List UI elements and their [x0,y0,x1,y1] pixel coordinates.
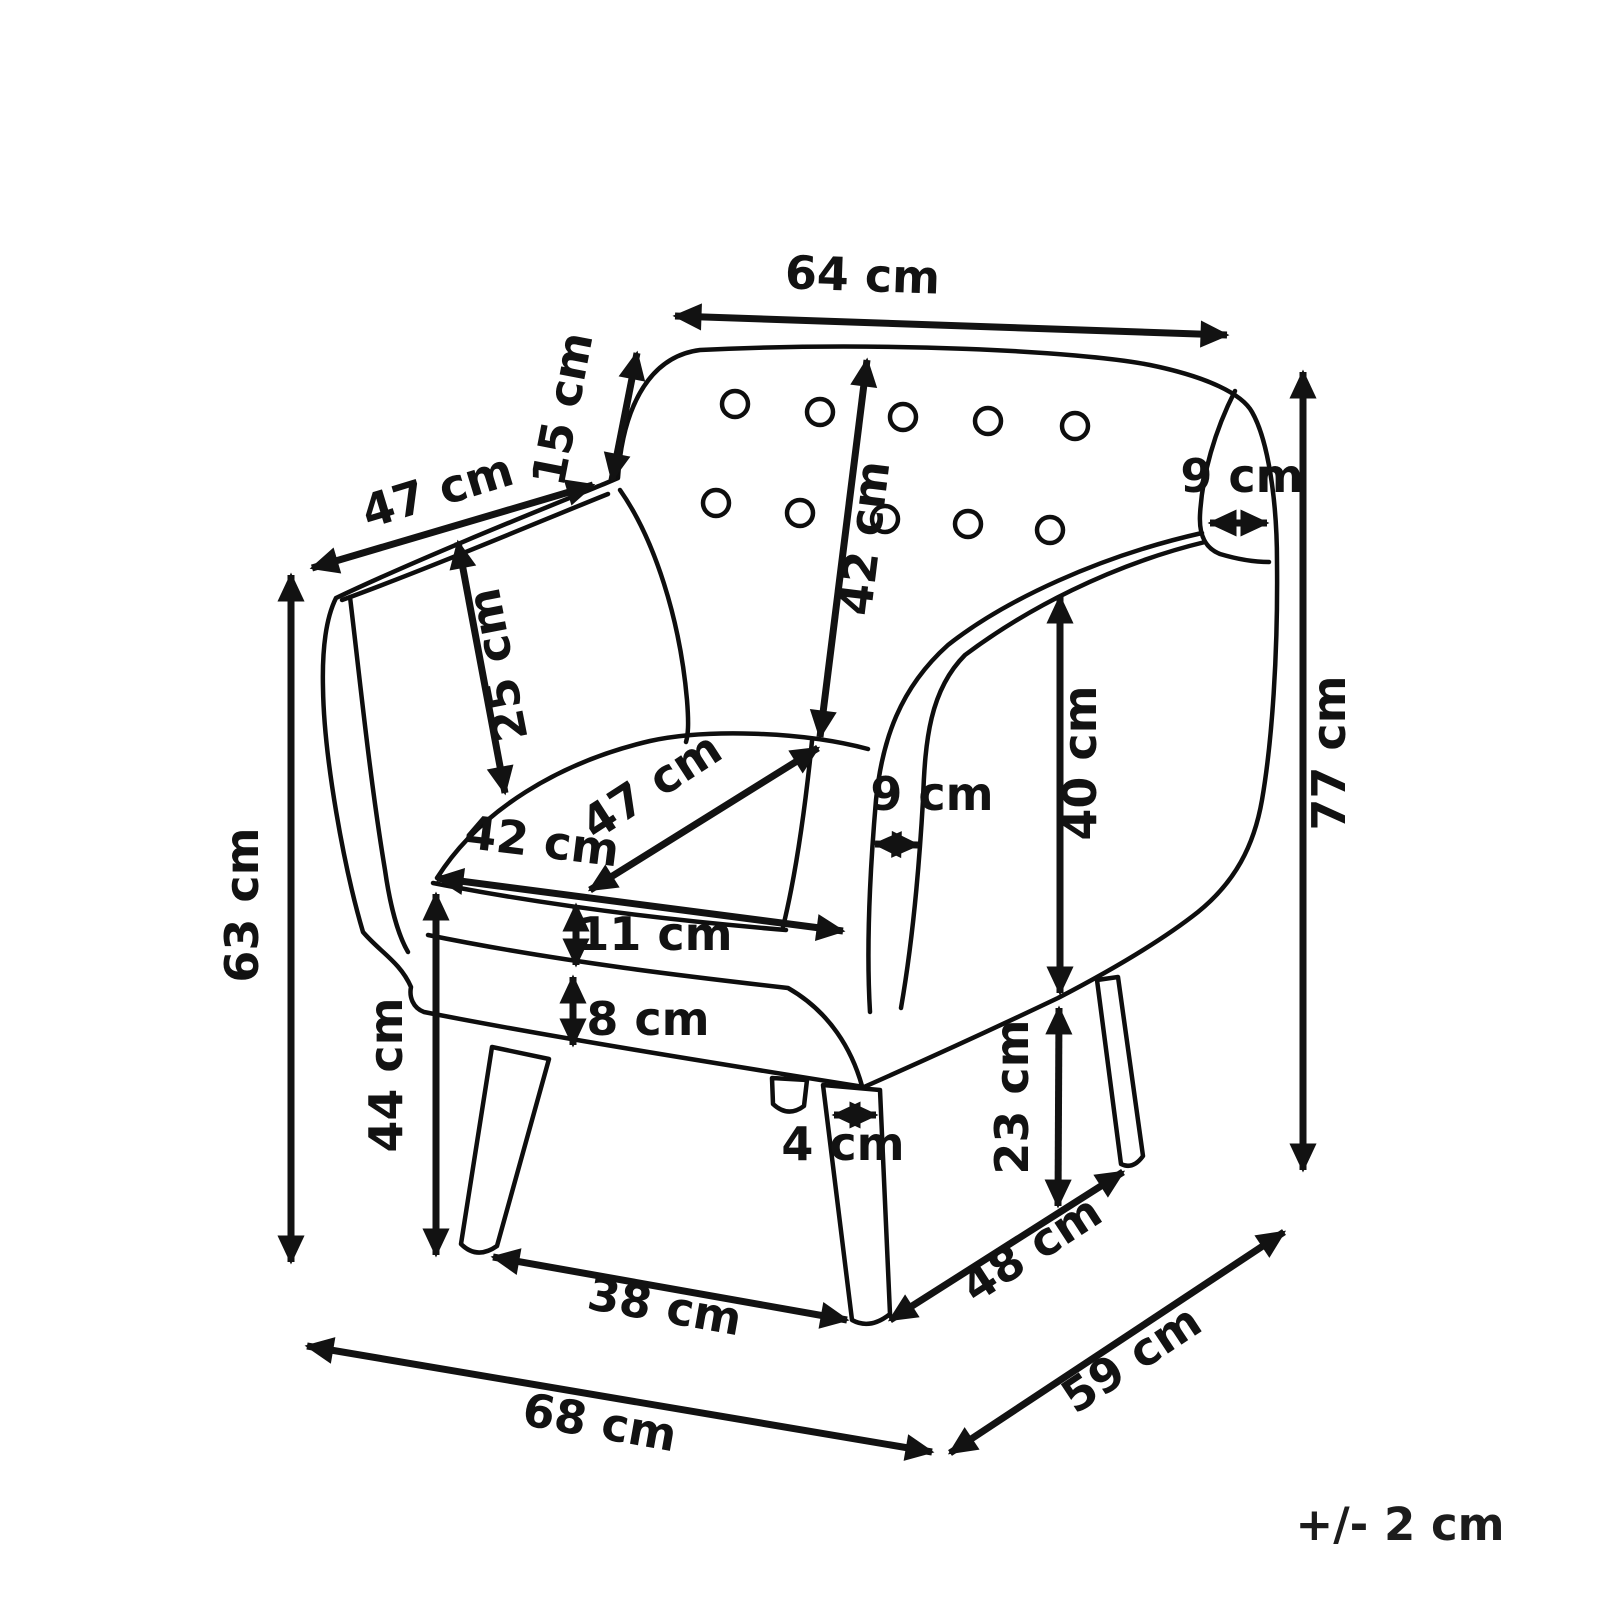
dimension-total-height: 77 cm [1302,372,1356,1170]
dim-arrow-leg-height [1058,1008,1059,1206]
tufting-button [975,408,1001,434]
dimension-cushion-thickness: 11 cm [576,905,733,965]
dim-label-seat-height: 44 cm [359,997,413,1152]
chair-leg-back-right [1097,977,1143,1166]
tufting-button [1062,413,1088,439]
tufting-button [807,399,833,425]
dim-label-cushion-thickness: 11 cm [577,907,732,961]
dim-label-base-height: 8 cm [586,992,709,1046]
tufting-button [1037,517,1063,543]
dimension-side-leg-span: 48 cm [890,1172,1123,1320]
armchair-dimension-drawing: 64 cm 15 cm 47 cm 42 cm 9 cm 77 cm 25 cm… [0,0,1600,1600]
dim-label-leg-width: 4 cm [781,1117,904,1171]
dimension-arm-height-left: 63 cm [215,575,291,1262]
dim-label-front-leg-span: 38 cm [584,1266,746,1346]
chair-leg-front-left [461,1047,549,1253]
dimension-diagram: 64 cm 15 cm 47 cm 42 cm 9 cm 77 cm 25 cm… [0,0,1600,1600]
dim-label-back-top-depth: 15 cm [521,328,604,491]
dimension-leg-width: 4 cm [781,1115,904,1171]
tufting-button [722,391,748,417]
dimension-top-width: 64 cm [675,245,1227,335]
tufting-button [787,500,813,526]
tufting-button [890,404,916,430]
dim-label-armrest-length: 47 cm [355,442,519,539]
tufting-button [955,511,981,537]
tufting-button [703,490,729,516]
chair-leg-back-left [772,1078,807,1112]
dim-label-wing-thickness: 9 cm [1180,449,1303,503]
dim-arrow-top-width [675,316,1227,335]
dim-label-arm-band-width: 9 cm [870,767,993,821]
dim-label-total-depth: 59 cm [1052,1293,1211,1424]
dim-label-top-width: 64 cm [784,245,941,304]
dim-label-leg-height: 23 cm [985,1019,1039,1174]
dim-label-total-width: 68 cm [519,1382,681,1462]
dim-label-arm-height-left: 63 cm [215,827,269,982]
dim-label-arm-height-right: 40 cm [1053,685,1107,840]
dimension-total-width: 68 cm [307,1346,932,1462]
dimension-front-leg-span: 38 cm [493,1257,847,1346]
tolerance-note: +/- 2 cm [1295,1498,1504,1551]
dim-arrow-arm-band-width [875,844,918,845]
dimension-leg-height: 23 cm [985,1008,1059,1206]
dim-label-side-leg-span: 48 cm [951,1184,1111,1314]
dim-label-total-height: 77 cm [1302,675,1356,830]
